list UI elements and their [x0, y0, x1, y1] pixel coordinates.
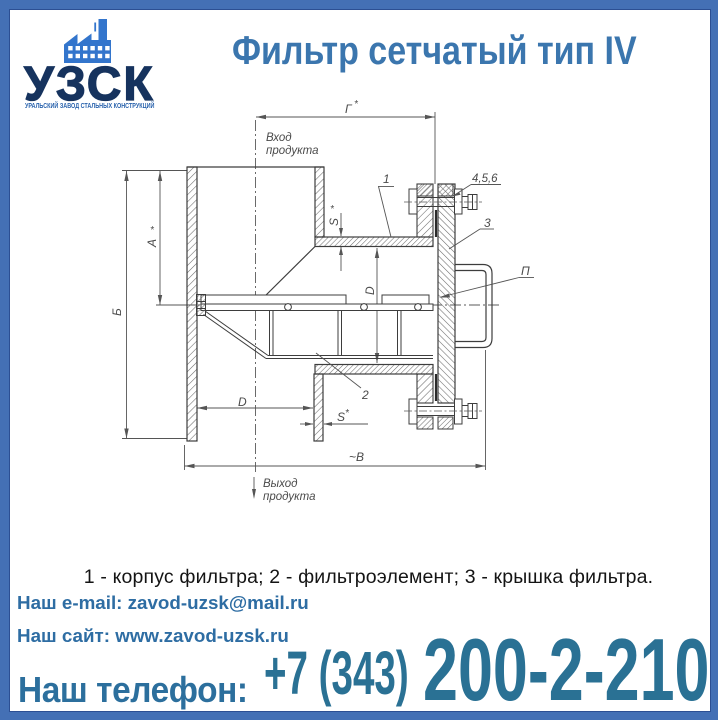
svg-text:А: А	[145, 239, 159, 248]
svg-text:Г: Г	[345, 102, 353, 116]
svg-text:D: D	[238, 395, 247, 409]
svg-text:~В: ~В	[349, 450, 364, 464]
svg-text:*: *	[150, 225, 155, 236]
svg-text:2: 2	[361, 388, 369, 402]
svg-text:П: П	[521, 264, 530, 278]
svg-text:D: D	[363, 286, 377, 295]
svg-text:*: *	[330, 204, 335, 215]
svg-text:Выход: Выход	[263, 478, 298, 490]
svg-text:Б: Б	[110, 308, 124, 316]
svg-text:продукта: продукта	[263, 491, 316, 503]
svg-text:*: *	[345, 408, 350, 419]
svg-text:продукта: продукта	[266, 145, 319, 157]
svg-text:S: S	[327, 218, 341, 226]
svg-text:3: 3	[484, 216, 491, 230]
svg-text:*: *	[354, 99, 359, 110]
svg-text:S: S	[337, 410, 345, 424]
svg-text:1: 1	[383, 172, 390, 186]
svg-text:Вход: Вход	[266, 132, 292, 144]
svg-text:4,5,6: 4,5,6	[472, 173, 498, 185]
